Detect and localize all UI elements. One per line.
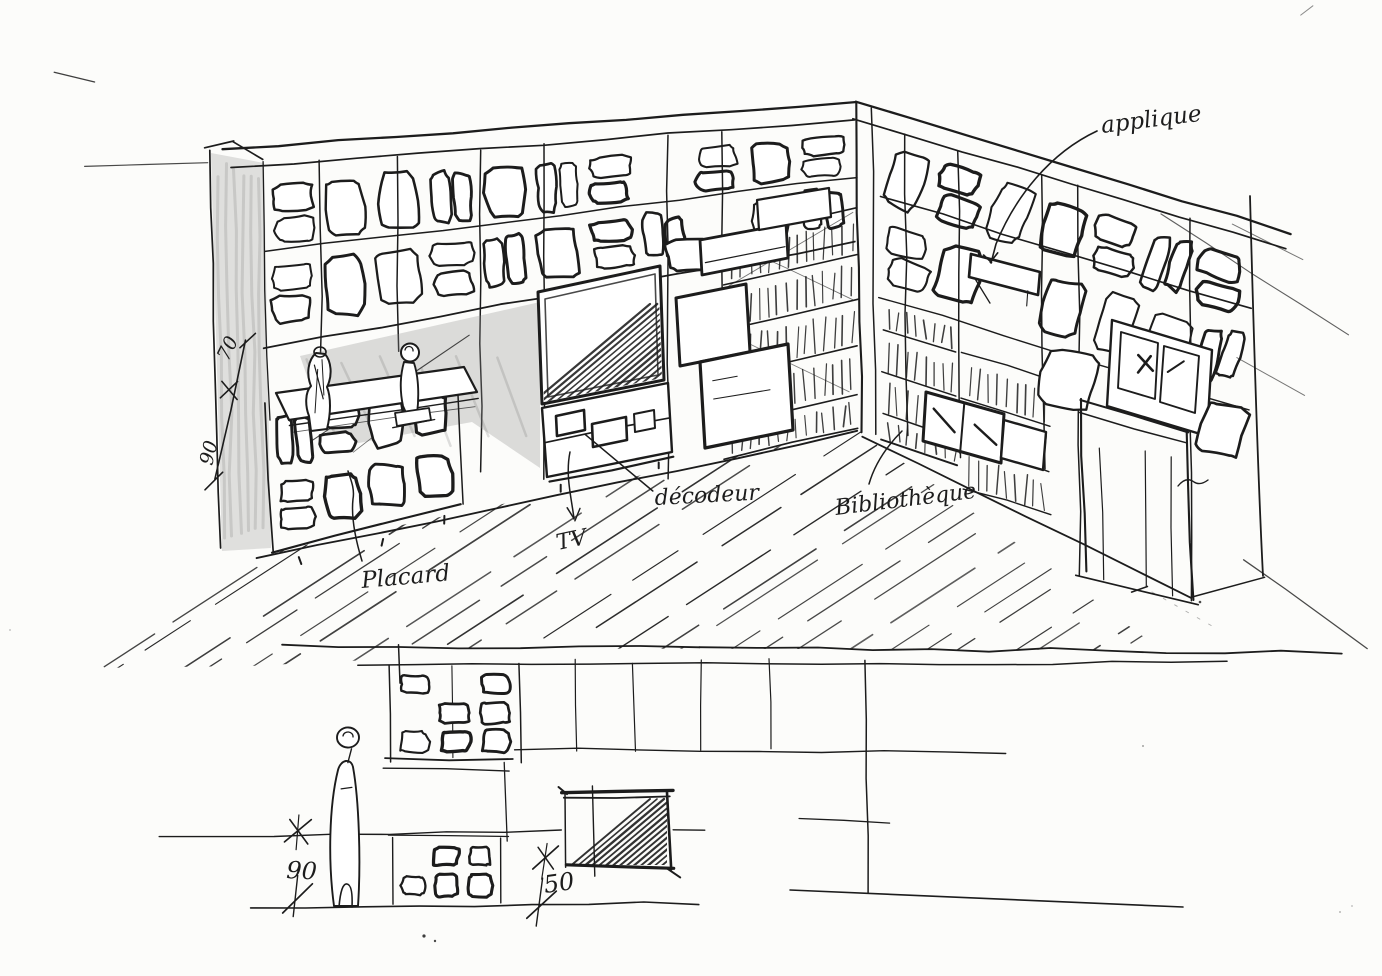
wall-unit-left: [205, 102, 859, 564]
label-tv: TV: [554, 525, 591, 556]
label-bibliotheque: Bibliothèque: [833, 479, 978, 521]
sketch-sheet: applique décodeur TV Placard Bibliothèqu…: [0, 0, 1382, 976]
label-decodeur: décodeur: [654, 480, 761, 511]
wall-unit-right: [853, 102, 1291, 605]
label-dim-50-elevation: 50: [542, 867, 576, 899]
label-placard: Placard: [359, 560, 451, 594]
sketch-canvas: applique décodeur TV Placard Bibliothèqu…: [0, 0, 1382, 976]
label-dim-90-elevation: 90: [286, 856, 318, 886]
elevation-view: [159, 645, 1342, 943]
label-applique: applique: [1100, 101, 1203, 139]
